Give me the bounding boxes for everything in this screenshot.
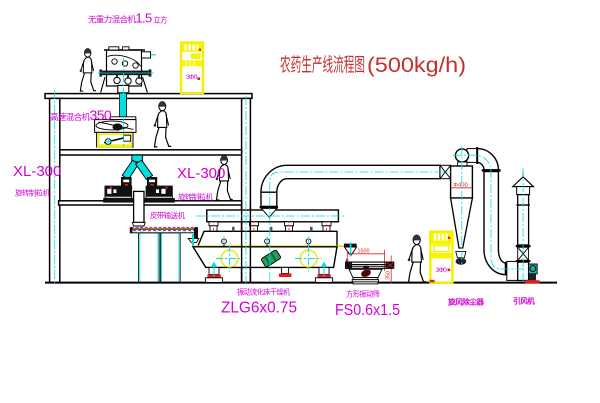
svg-text:方形振动筛: 方形振动筛	[346, 290, 380, 299]
svg-text:350: 350	[386, 271, 392, 280]
svg-text:引风机: 引风机	[513, 296, 535, 306]
svg-text:旋转制粒机: 旋转制粒机	[178, 193, 214, 202]
svg-text:Φ400: Φ400	[453, 182, 467, 188]
svg-text:3Φ0: 3Φ0	[436, 267, 448, 274]
svg-text:旋转制粒机: 旋转制粒机	[15, 189, 51, 198]
svg-text:皮带输送机: 皮带输送机	[150, 211, 186, 220]
svg-text:FS0.6x1.5: FS0.6x1.5	[335, 302, 400, 319]
svg-text:农药生产线流程图: 农药生产线流程图	[280, 54, 365, 76]
svg-text:1500: 1500	[358, 249, 370, 255]
svg-text:旋风除尘器: 旋风除尘器	[447, 297, 484, 307]
svg-text:振动流化床干燥机: 振动流化床干燥机	[237, 288, 291, 297]
svg-text:3Φ0: 3Φ0	[186, 74, 198, 81]
svg-text:(500kg/h): (500kg/h)	[367, 54, 466, 77]
svg-text:XL-300: XL-300	[13, 163, 61, 180]
svg-text:XL-300: XL-300	[177, 165, 225, 182]
svg-text:ZLG6x0.75: ZLG6x0.75	[221, 300, 297, 317]
